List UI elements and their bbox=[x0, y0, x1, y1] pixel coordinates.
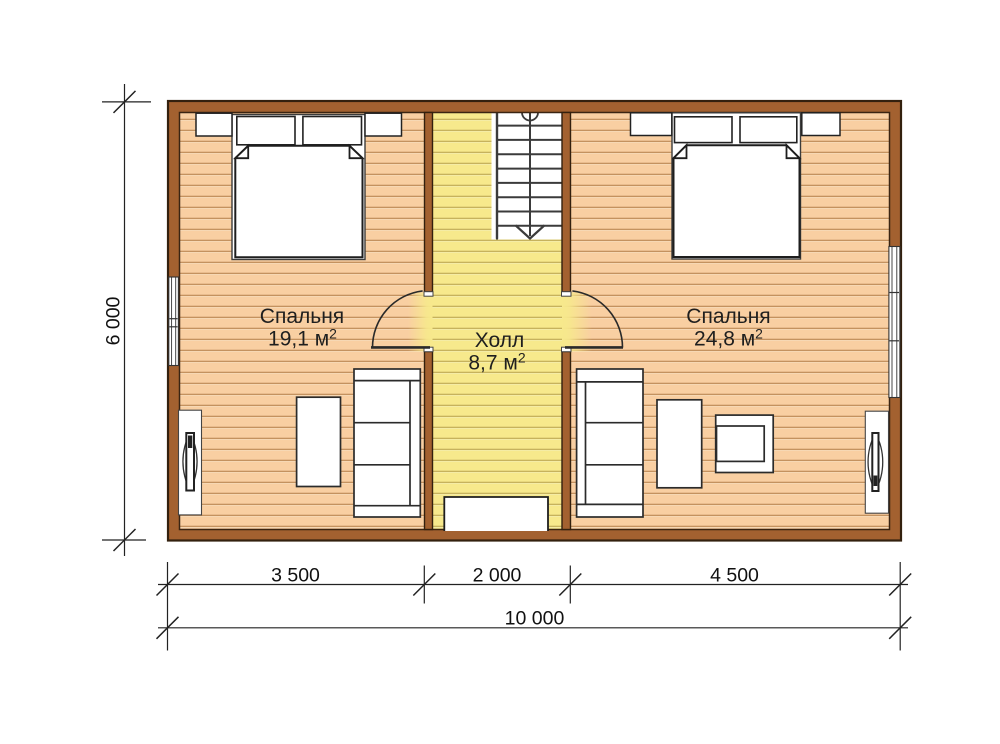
svg-text:2 000: 2 000 bbox=[473, 565, 522, 587]
svg-text:24,8 м2: 24,8 м2 bbox=[694, 326, 763, 351]
svg-text:19,1 м2: 19,1 м2 bbox=[268, 326, 337, 351]
svg-text:8,7 м2: 8,7 м2 bbox=[468, 350, 525, 375]
svg-text:4 500: 4 500 bbox=[710, 565, 759, 587]
svg-text:3 500: 3 500 bbox=[271, 565, 320, 587]
svg-text:10 000: 10 000 bbox=[505, 608, 565, 630]
svg-text:6 000: 6 000 bbox=[103, 296, 125, 345]
svg-text:Холл: Холл bbox=[475, 329, 525, 352]
